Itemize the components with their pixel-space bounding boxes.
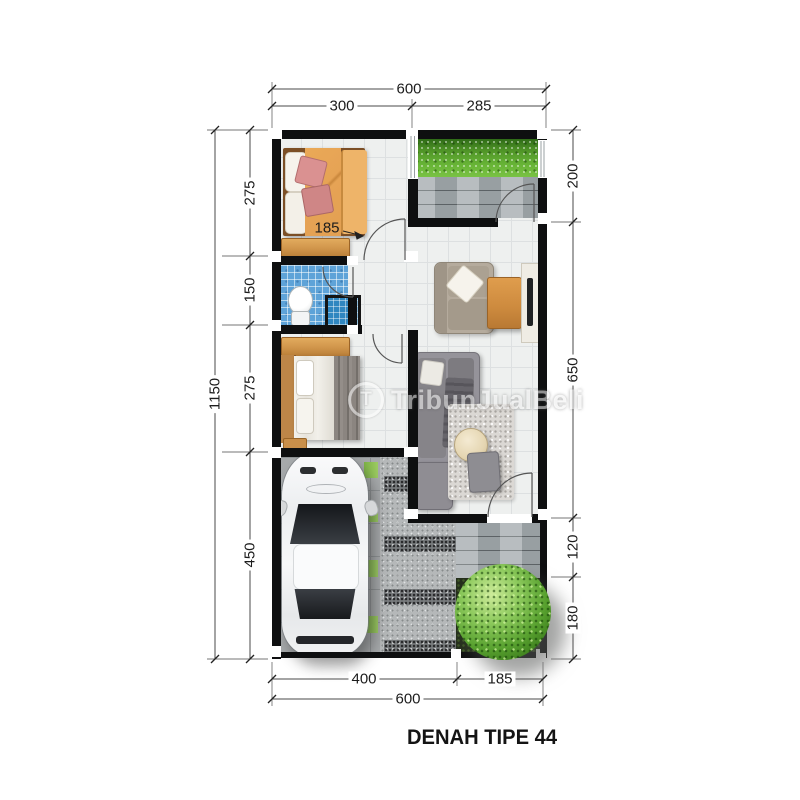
dim-right-seg4: 180 [566, 602, 581, 633]
car-windshield [290, 504, 360, 544]
sofa-living [434, 262, 494, 334]
pink-cushion [301, 184, 335, 218]
bed-blanket-fold [341, 150, 367, 234]
plan-title: DENAH TIPE 44 [407, 726, 557, 750]
sofa-cushion [448, 299, 489, 330]
column-marker [538, 509, 547, 520]
dim-bottom-overall: 600 [392, 692, 423, 707]
wall-right [538, 130, 547, 523]
car-vent [300, 467, 316, 474]
dim-left-seg2: 150 [243, 274, 258, 305]
column-marker [272, 251, 281, 262]
column-marker [272, 320, 281, 331]
wall-bedroom1-bathroom [272, 256, 357, 265]
dim-bed-width: 185 [311, 221, 342, 236]
dim-right-seg2: 650 [566, 354, 581, 385]
wall-bedroom2-bottom [272, 448, 418, 457]
tv-screen [527, 278, 533, 326]
dim-left-overall: 1150 [208, 375, 223, 413]
front-terrace-paving [413, 177, 538, 218]
column-marker [537, 130, 547, 139]
bed-second [294, 356, 360, 440]
pebble-band [384, 536, 456, 552]
column-marker [404, 251, 418, 262]
wall-bedroom2-right [408, 330, 418, 448]
ottoman [467, 451, 502, 493]
column-marker [404, 509, 418, 519]
pebble-band [384, 589, 456, 605]
wall-terrace-bottom [408, 218, 498, 227]
window-front-right [538, 140, 547, 178]
dim-right-seg1: 200 [566, 160, 581, 191]
car-trunk-stripe [296, 636, 354, 644]
dim-bottom-seg2: 185 [484, 672, 515, 687]
sofa-back [435, 263, 447, 333]
column-marker [272, 646, 281, 657]
coffee-table [487, 277, 522, 329]
pebble-band [384, 476, 408, 492]
column-marker [451, 649, 461, 658]
dim-right-seg3: 120 [566, 531, 581, 562]
toilet [288, 286, 311, 324]
wall-left [272, 130, 281, 659]
column-marker [272, 130, 282, 139]
dim-top-overall: 600 [393, 82, 424, 97]
dim-top-seg2: 285 [463, 99, 494, 114]
garden-tree [455, 564, 551, 660]
floor-plan-page: 600 300 285 1150 275 150 275 450 200 650… [0, 0, 800, 800]
dim-bottom-seg1: 400 [348, 672, 379, 687]
column-marker [272, 447, 281, 458]
car-top-view [282, 452, 368, 656]
bed-gray-blanket [334, 356, 360, 440]
dim-left-seg1: 275 [243, 177, 258, 208]
car-hood-line [306, 484, 346, 494]
car-roof [293, 544, 359, 590]
window-bedroom1-side [408, 135, 418, 179]
bed-pillow [296, 360, 314, 396]
column-marker [404, 447, 418, 457]
grass-accent-strip [364, 462, 378, 478]
front-grass-strip [413, 139, 538, 177]
dim-left-seg4: 450 [243, 539, 258, 570]
car-rear-window [292, 589, 358, 619]
sofa-white-pillow [419, 360, 444, 387]
dim-left-seg3: 275 [243, 372, 258, 403]
dim-top-seg1: 300 [326, 99, 357, 114]
toilet-tank [291, 311, 310, 326]
dresser-bedroom2 [281, 337, 350, 357]
column-marker [347, 325, 358, 334]
column-marker [347, 256, 358, 265]
car-vent [332, 467, 348, 474]
wall-living-bottom-a [408, 514, 487, 523]
dresser-bedroom1 [281, 238, 350, 258]
bed-pillow [296, 398, 314, 434]
column-marker [538, 213, 547, 224]
